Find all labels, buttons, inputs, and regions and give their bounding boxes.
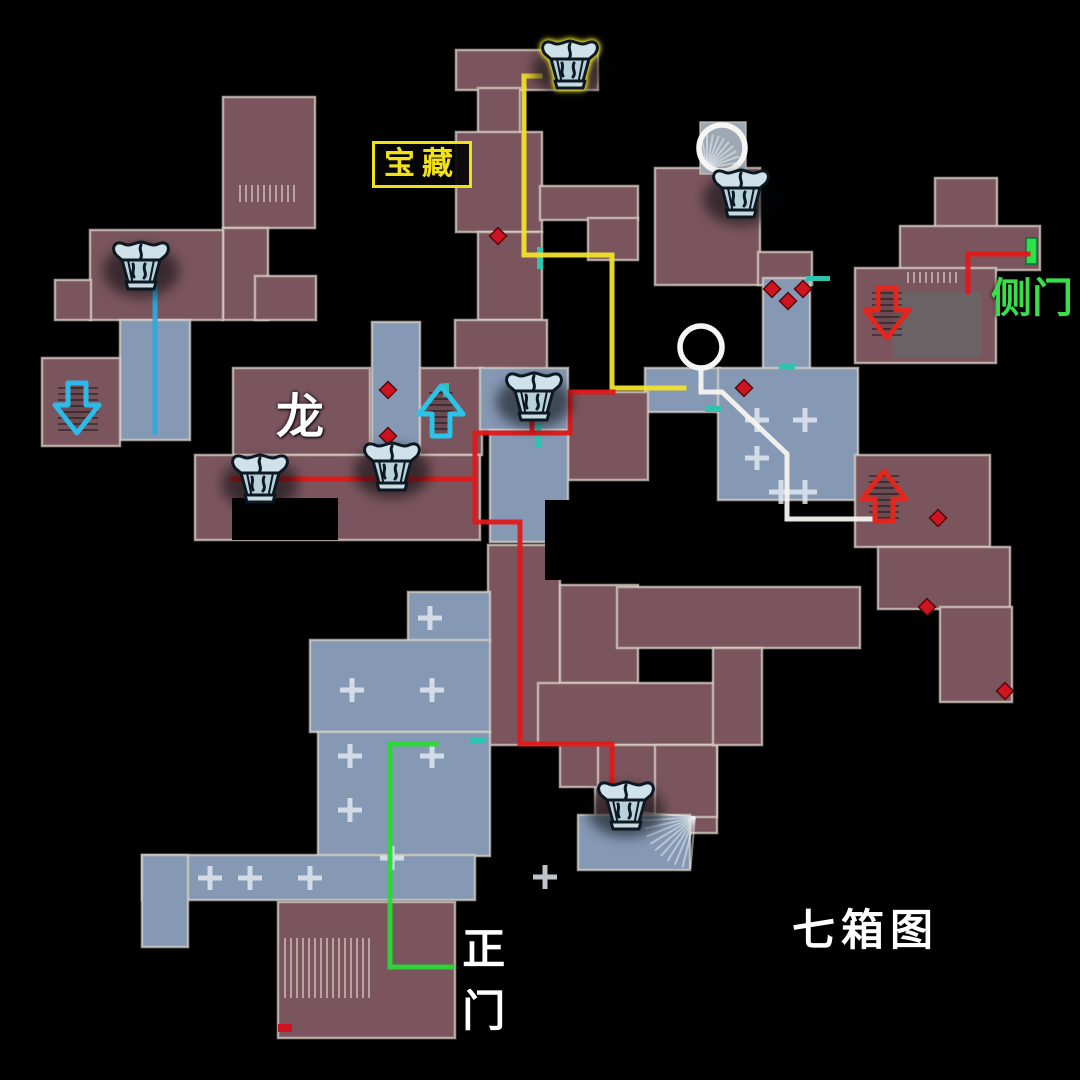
stairs-hatch xyxy=(285,938,369,998)
side-door-label: 侧门 xyxy=(991,276,1073,320)
side-door-marker-icon xyxy=(1026,238,1037,264)
wall-cross xyxy=(533,865,557,889)
map-room xyxy=(310,640,490,732)
map-room xyxy=(478,232,542,320)
door-marker xyxy=(470,738,486,744)
map-room xyxy=(142,855,188,947)
map-room xyxy=(538,683,716,745)
map-room xyxy=(560,745,598,787)
map-room xyxy=(55,280,91,320)
map-room xyxy=(713,648,762,745)
map-room xyxy=(878,547,1010,609)
map-dark-inset xyxy=(893,292,981,358)
map-room xyxy=(478,88,520,134)
map-room xyxy=(318,732,490,856)
door-marker xyxy=(705,406,721,412)
map-room xyxy=(255,276,316,320)
map-room xyxy=(655,745,717,817)
door-marker xyxy=(779,364,795,370)
map-room xyxy=(455,320,547,370)
map-room xyxy=(223,97,315,228)
game-map-canvas: 宝藏 龙 侧门 正门 七箱图 xyxy=(0,0,1080,1080)
map-room xyxy=(278,902,455,1038)
door-marker xyxy=(806,276,830,281)
door-marker xyxy=(537,247,543,269)
map-room xyxy=(568,392,648,480)
map-room xyxy=(617,587,860,648)
seven-chest-title: 七箱图 xyxy=(792,908,939,954)
treasure-label: 宝藏 xyxy=(372,141,472,188)
map-room xyxy=(540,186,638,220)
dragon-label: 龙 xyxy=(276,392,324,444)
main-gate-label: 正门 xyxy=(459,919,508,1044)
map-room xyxy=(935,178,997,228)
objective-circle-icon xyxy=(680,326,722,368)
map-black-inset xyxy=(545,500,589,580)
red-spot-marker xyxy=(278,1024,292,1032)
